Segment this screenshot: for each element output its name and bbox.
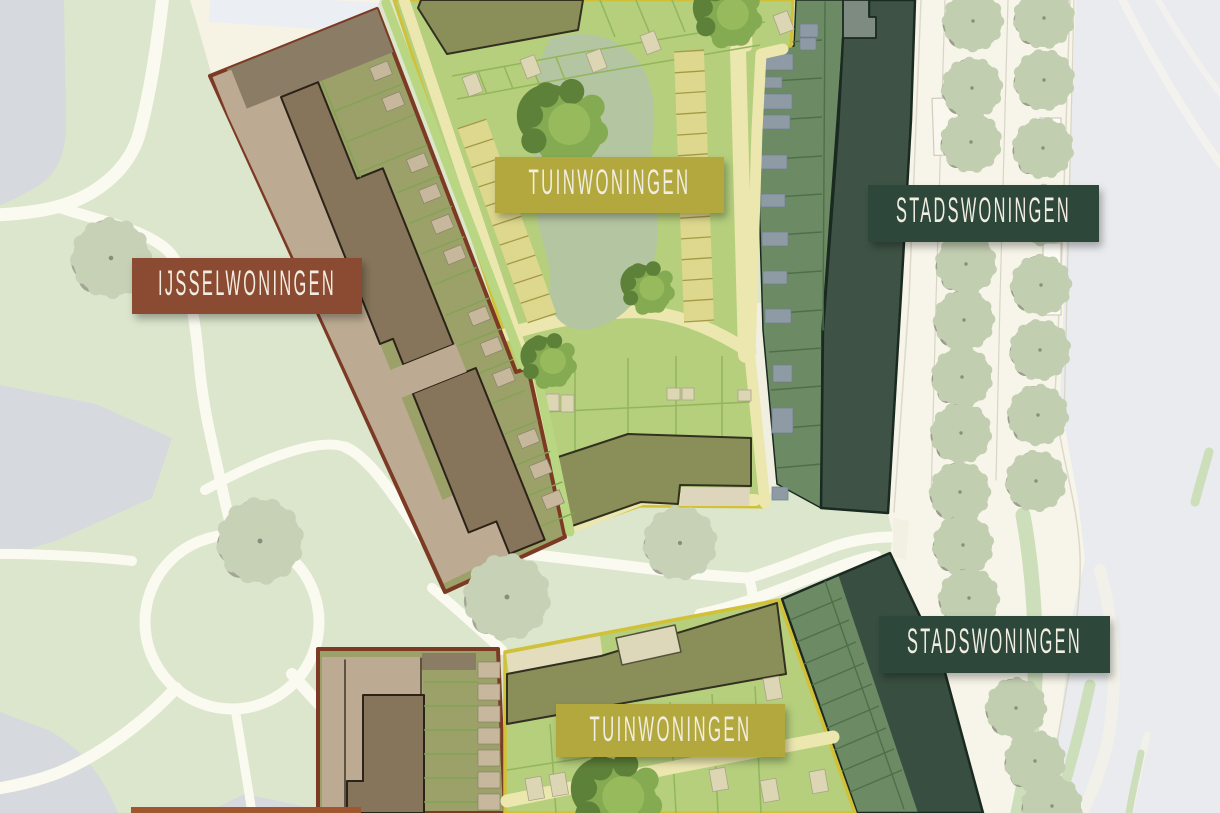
- svg-text:IJSSELWONINGEN: IJSSELWONINGEN: [158, 264, 336, 303]
- svg-text:TUINWONINGEN: TUINWONINGEN: [590, 710, 752, 749]
- svg-text:TUINWONINGEN: TUINWONINGEN: [529, 163, 691, 202]
- svg-text:STADSWONINGEN: STADSWONINGEN: [896, 191, 1071, 230]
- svg-text:STADSWONINGEN: STADSWONINGEN: [907, 622, 1082, 661]
